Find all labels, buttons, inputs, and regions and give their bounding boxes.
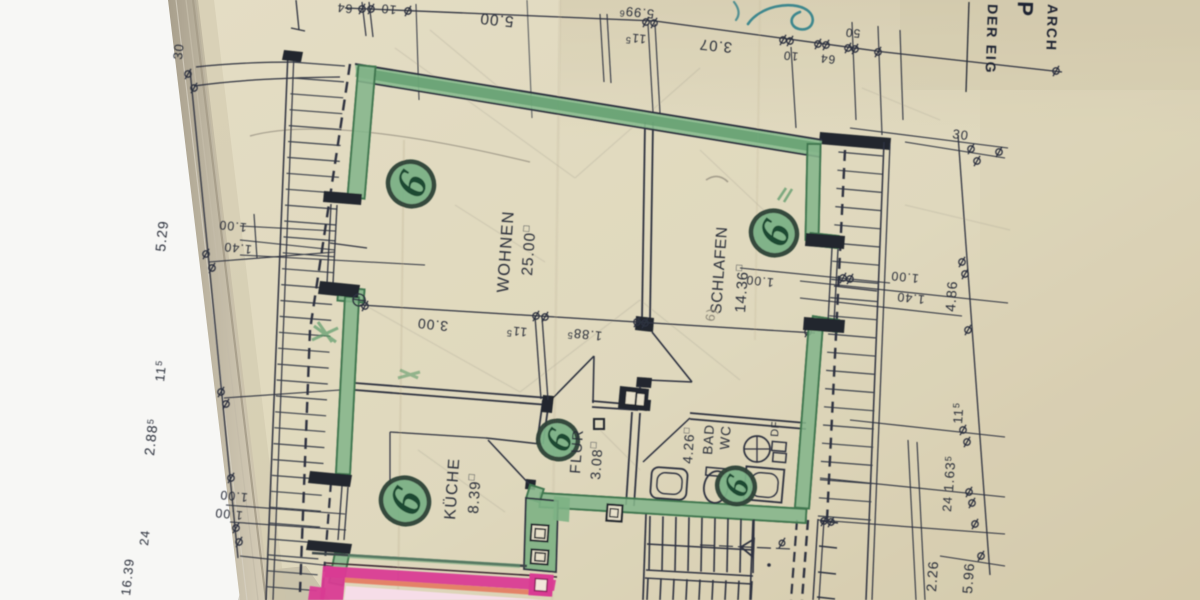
svg-text:5.96: 5.96 — [959, 562, 977, 594]
svg-text:DER EIG: DER EIG — [983, 4, 1001, 75]
svg-text:1.00: 1.00 — [214, 506, 244, 523]
svg-text:6): 6) — [702, 307, 719, 323]
svg-text:5.00: 5.00 — [479, 9, 515, 29]
svg-text:10: 10 — [380, 1, 397, 17]
svg-text:30: 30 — [170, 42, 187, 60]
svg-text:FLUR: FLUR — [567, 428, 587, 474]
svg-text:30: 30 — [952, 126, 970, 143]
svg-text:64: 64 — [336, 0, 353, 16]
svg-text:DF: DF — [769, 421, 782, 437]
svg-text:P: P — [1012, 1, 1038, 18]
svg-text:1.00: 1.00 — [218, 218, 248, 235]
svg-text:ARCH: ARCH — [1043, 4, 1061, 52]
svg-text:24: 24 — [137, 529, 153, 546]
svg-text:1.40: 1.40 — [896, 290, 926, 307]
svg-text:5.29: 5.29 — [152, 220, 171, 253]
svg-text:10: 10 — [782, 48, 799, 64]
svg-text:WC: WC — [717, 425, 734, 450]
svg-text:4.86: 4.86 — [942, 280, 960, 312]
svg-text:BAD: BAD — [700, 423, 717, 455]
svg-text:50: 50 — [844, 25, 861, 41]
svg-text:64: 64 — [819, 51, 836, 67]
svg-text:2.26: 2.26 — [923, 560, 941, 592]
svg-text:24: 24 — [940, 495, 955, 512]
svg-text:1.00: 1.00 — [890, 269, 920, 286]
svg-text:3.00: 3.00 — [416, 315, 449, 334]
svg-text:3.07: 3.07 — [698, 35, 733, 55]
svg-text:1.00: 1.00 — [219, 488, 249, 505]
svg-text:1.40: 1.40 — [223, 240, 253, 257]
